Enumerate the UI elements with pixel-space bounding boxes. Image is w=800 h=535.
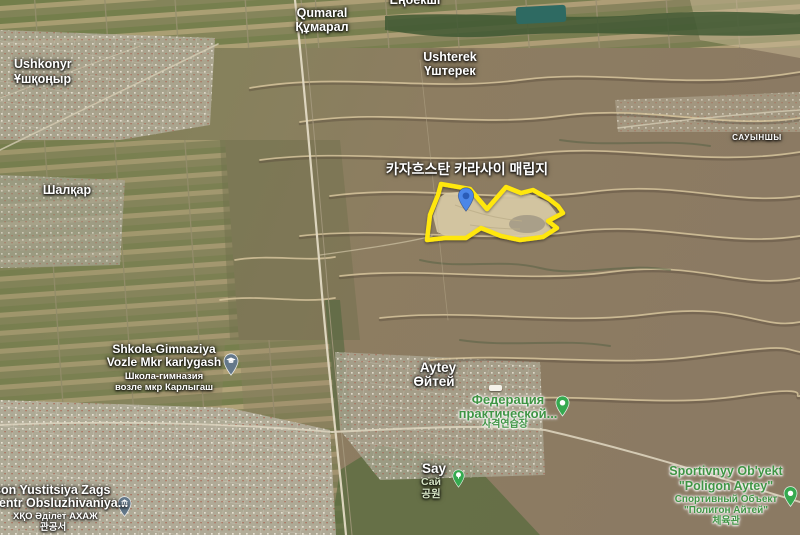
label-school-line1[interactable]: Shkola-Gimnaziya	[112, 343, 215, 356]
poi-chip	[489, 385, 502, 391]
label-ushterek-latin[interactable]: Ushterek	[423, 51, 477, 64]
label-sport-object-line3[interactable]: Спортивный Объект	[675, 495, 778, 506]
label-shalqar[interactable]: Шалқар	[43, 184, 91, 197]
label-justice-center-korean[interactable]: 관공서	[40, 523, 66, 533]
label-ushkonyr-latin[interactable]: Ushkonyr	[14, 58, 72, 71]
label-sauynshy[interactable]: САУЫНШЫ	[732, 134, 782, 142]
label-say-park-korean[interactable]: 공원	[421, 489, 440, 500]
label-ushterek-kazakh[interactable]: Үштерек	[424, 65, 475, 78]
label-sport-object-line2[interactable]: "Poligon Aytey"	[679, 480, 773, 493]
site-boundary-overlay	[0, 0, 800, 535]
label-shooting-federation-line1[interactable]: Федерация	[472, 393, 545, 407]
label-school-line2[interactable]: Vozle Mkr karlygash	[107, 356, 222, 369]
satellite-map-view[interactable]: Qumaral Құмарал Еңбекші Ushkonyr Ұшқоңыр…	[0, 0, 800, 535]
label-shooting-federation-korean[interactable]: 사격연습장	[482, 420, 528, 431]
site-location-pin[interactable]	[457, 187, 475, 217]
label-aytey-kazakh[interactable]: Өйтей	[413, 375, 454, 389]
label-enbekshi[interactable]: Еңбекші	[390, 0, 441, 7]
sport-object-poi-pin[interactable]	[783, 486, 798, 512]
school-poi-pin[interactable]	[223, 353, 239, 381]
label-justice-center-line2[interactable]: sentr Obsluzhivaniya...	[0, 497, 128, 510]
label-ushkonyr-kazakh[interactable]: Ұшқоңыр	[14, 73, 71, 86]
label-justice-center-line3[interactable]: ХҚО Әділет АХАЖ	[13, 512, 98, 522]
label-landfill-site-korean[interactable]: 카자흐스탄 카라사이 매립지	[386, 162, 548, 177]
label-sport-object-line1[interactable]: Sportivnyy Ob'yekt	[669, 465, 782, 478]
label-sport-object-korean[interactable]: 체육관	[712, 517, 740, 528]
label-say-park-latin[interactable]: Say	[422, 462, 446, 476]
park-poi-pin[interactable]	[452, 469, 465, 493]
label-sport-object-line4[interactable]: "Полигон Айтей"	[684, 506, 768, 517]
label-school-line3[interactable]: Школа-гимназия	[125, 372, 203, 382]
label-qumaral-latin[interactable]: Qumaral	[297, 7, 348, 20]
label-qumaral-kazakh[interactable]: Құмарал	[295, 21, 348, 34]
label-say-park-cyrillic[interactable]: Сай	[421, 477, 441, 488]
label-school-line4[interactable]: возле мкр Карлыгаш	[115, 383, 213, 393]
site-boundary-polygon	[427, 184, 563, 240]
